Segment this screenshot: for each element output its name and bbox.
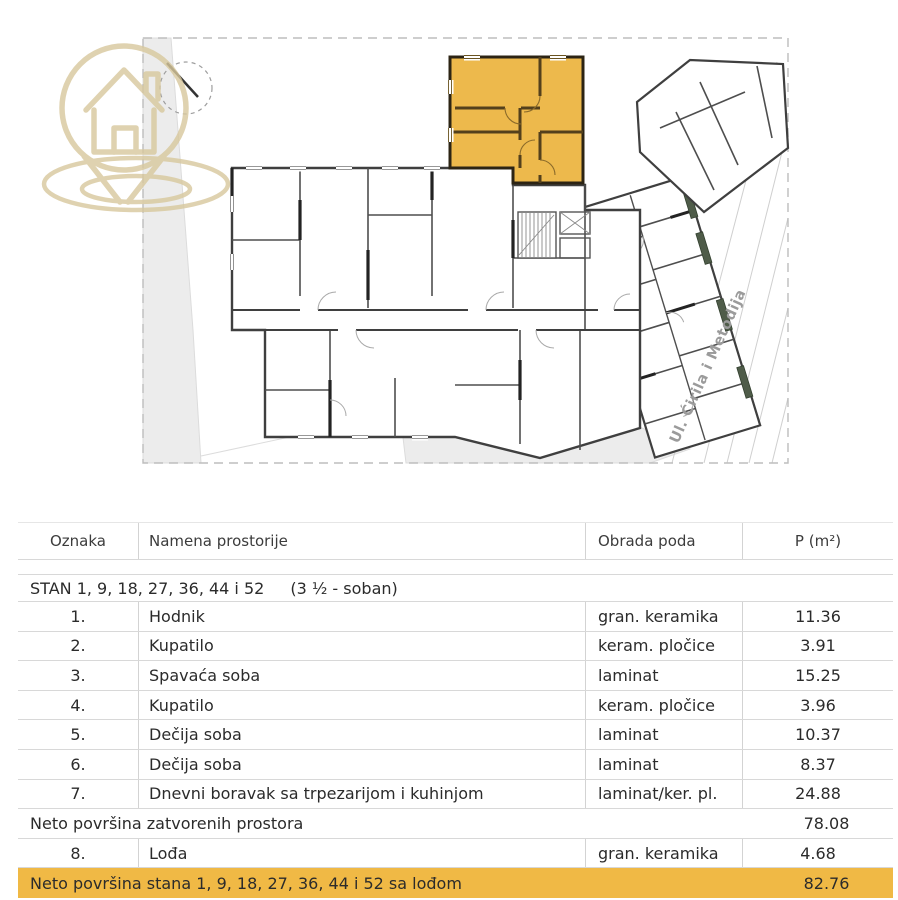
row-number: 3. xyxy=(18,666,138,685)
area-value: 15.25 xyxy=(742,661,893,690)
table-row: 3. Spavaća soba laminat 15.25 xyxy=(18,661,893,691)
room-name: Spavaća soba xyxy=(138,661,585,690)
house-pin-logo-icon xyxy=(44,46,228,210)
subtotal-label: Neto površina zatvorenih prostora xyxy=(18,814,760,833)
col-header-oznaka: Oznaka xyxy=(18,532,138,550)
area-value: 24.88 xyxy=(742,780,893,809)
floor-finish: gran. keramika xyxy=(585,839,742,868)
subtotal-row: Neto površina zatvorenih prostora 78.08 xyxy=(18,809,893,839)
area-value: 3.96 xyxy=(742,691,893,720)
central-block xyxy=(229,165,641,459)
section-title: STAN 1, 9, 18, 27, 36, 44 i 52 xyxy=(30,579,264,598)
highlighted-apartment xyxy=(447,54,584,184)
section-subtitle: (3 ½ - soban) xyxy=(290,579,397,598)
row-number: 8. xyxy=(18,844,138,863)
section-title-row: STAN 1, 9, 18, 27, 36, 44 i 52 (3 ½ - so… xyxy=(18,575,893,602)
row-number: 1. xyxy=(18,607,138,626)
area-value: 10.37 xyxy=(742,720,893,749)
room-name: Dečija soba xyxy=(138,750,585,779)
row-number: 6. xyxy=(18,755,138,774)
spacer-row xyxy=(18,560,893,575)
page: { "colors": { "accent": "#edb94c", "acce… xyxy=(0,0,898,900)
table-header-row: Oznaka Namena prostorije Obrada poda P (… xyxy=(18,522,893,560)
row-number: 2. xyxy=(18,636,138,655)
room-name: Kupatilo xyxy=(138,691,585,720)
table-row: 8. Lođa gran. keramika 4.68 xyxy=(18,839,893,869)
floor-finish: laminat xyxy=(585,750,742,779)
area-value: 11.36 xyxy=(742,602,893,631)
staircase xyxy=(518,212,556,258)
table-row: 4. Kupatilo keram. pločice 3.96 xyxy=(18,691,893,721)
floor-finish: laminat/ker. pl. xyxy=(585,780,742,809)
total-label: Neto površina stana 1, 9, 18, 27, 36, 44… xyxy=(18,874,760,893)
total-row: Neto površina stana 1, 9, 18, 27, 36, 44… xyxy=(18,868,893,898)
floor-finish: keram. pločice xyxy=(585,632,742,661)
table-row: 6. Dečija soba laminat 8.37 xyxy=(18,750,893,780)
subtotal-area: 78.08 xyxy=(760,814,893,833)
area-value: 4.68 xyxy=(742,839,893,868)
area-value: 3.91 xyxy=(742,632,893,661)
col-header-namena: Namena prostorije xyxy=(138,523,585,559)
table-row: 2. Kupatilo keram. pločice 3.91 xyxy=(18,632,893,662)
room-name: Hodnik xyxy=(138,602,585,631)
row-number: 5. xyxy=(18,725,138,744)
table-row: 7. Dnevni boravak sa trpezarijom i kuhin… xyxy=(18,780,893,810)
row-number: 4. xyxy=(18,696,138,715)
col-header-obrada: Obrada poda xyxy=(585,523,742,559)
table-row: 1. Hodnik gran. keramika 11.36 xyxy=(18,602,893,632)
table-row: 5. Dečija soba laminat 10.37 xyxy=(18,720,893,750)
row-number: 7. xyxy=(18,784,138,803)
room-name: Dečija soba xyxy=(138,720,585,749)
floor-finish: laminat xyxy=(585,720,742,749)
room-name: Lođa xyxy=(138,839,585,868)
floor-finish: gran. keramika xyxy=(585,602,742,631)
floor-plan-drawing: Ul. Ćirila i Metodija xyxy=(0,0,898,515)
col-header-povrsina: P (m²) xyxy=(742,523,893,559)
area-value: 8.37 xyxy=(742,750,893,779)
area-table: Oznaka Namena prostorije Obrada poda P (… xyxy=(18,522,893,898)
room-name: Dnevni boravak sa trpezarijom i kuhinjom xyxy=(138,780,585,809)
floor-finish: laminat xyxy=(585,661,742,690)
floor-finish: keram. pločice xyxy=(585,691,742,720)
room-name: Kupatilo xyxy=(138,632,585,661)
total-area: 82.76 xyxy=(760,874,893,893)
floor-plan: Ul. Ćirila i Metodija xyxy=(0,0,898,515)
